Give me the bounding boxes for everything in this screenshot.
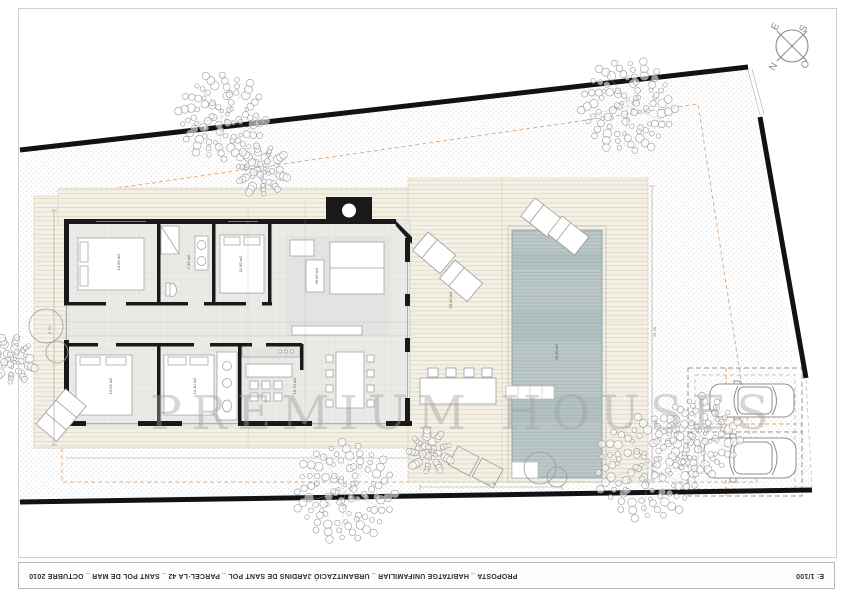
dimension-label: 25.30 <box>652 326 657 337</box>
room-label: 35.00 m2 <box>554 343 559 360</box>
compass-west: O <box>799 59 812 71</box>
compass-icon: S E N O <box>767 21 812 73</box>
floor-plan-drawing: 25.30 10.35 9.70 13.60 m2 7.15 m2 11.90 … <box>0 0 847 600</box>
room-label: 12.40 m2 <box>192 377 197 394</box>
fireplace <box>342 204 356 218</box>
room-label: 49.80 m2 <box>314 267 319 284</box>
plan-sheet: 25.30 10.35 9.70 13.60 m2 7.15 m2 11.90 … <box>0 0 847 600</box>
room-label: 13.60 m2 <box>116 253 121 270</box>
room-label: 50.00 m2 <box>448 291 453 308</box>
compass-east: E <box>769 21 782 32</box>
compass-south: S <box>797 23 810 34</box>
room-label: 13.05 m2 <box>108 377 113 394</box>
room-label: 11.90 m2 <box>238 255 243 272</box>
title-strip: E: 1/100 PROPOSTA _ HABITATGE UNIFAMILIA… <box>18 562 835 589</box>
car <box>710 381 794 420</box>
room-label: 16.70 m2 <box>292 377 297 394</box>
dimension-label: 9.70 <box>47 325 52 334</box>
scale-text: E: 1/100 <box>796 572 824 579</box>
room-label: 7.15 m2 <box>186 254 191 269</box>
house <box>64 197 412 426</box>
dimension-label: 10.35 <box>486 481 497 486</box>
sheet-title: PROPOSTA _ HABITATGE UNIFAMILIAR _ URBAN… <box>29 572 517 579</box>
compass-north: N <box>767 61 780 73</box>
